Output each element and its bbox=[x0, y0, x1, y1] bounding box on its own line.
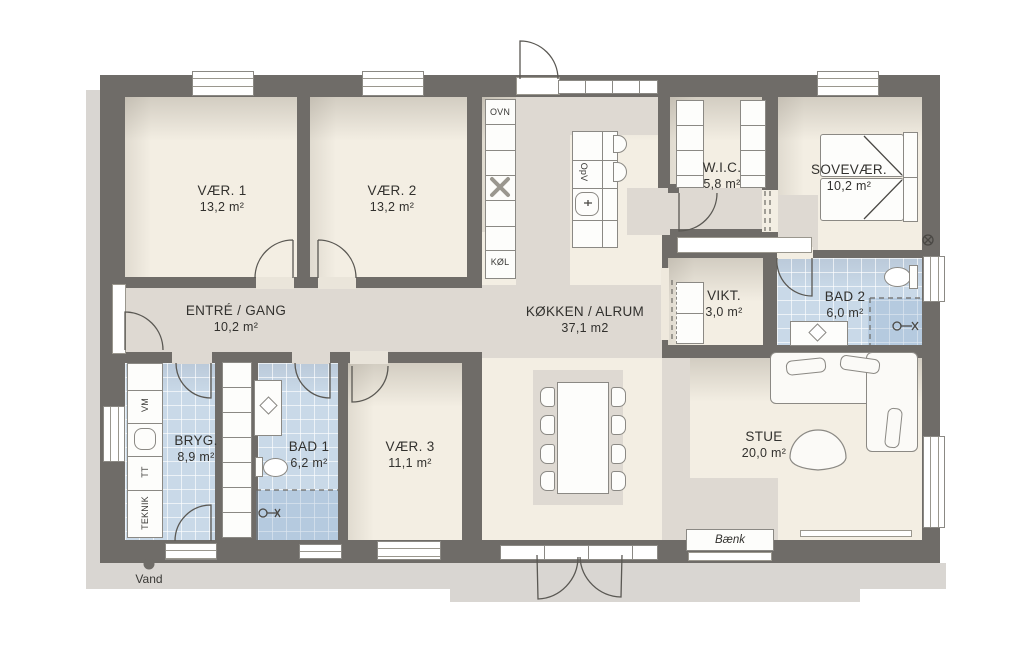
counter-divider bbox=[486, 175, 515, 176]
room-label-bad2: BAD 26,0 m² bbox=[795, 289, 895, 321]
dining-chair bbox=[611, 471, 626, 491]
counter-divider bbox=[486, 200, 515, 201]
teknik-label: TEKNIK bbox=[140, 483, 150, 543]
dining-chair bbox=[611, 387, 626, 407]
shadow-bottom bbox=[86, 563, 946, 589]
room-label-vikt: VIKT.3,0 m² bbox=[674, 288, 774, 320]
washing-machine-label: VM bbox=[140, 385, 150, 425]
room-label-bryg: BRYG.8,9 m² bbox=[146, 433, 246, 465]
window-bad2-right bbox=[923, 256, 945, 302]
room-label-wic: W.I.C.5,8 m² bbox=[672, 160, 772, 192]
window-sovevaer bbox=[817, 71, 879, 96]
dining-chair bbox=[540, 415, 555, 435]
bench-label: Bænk bbox=[687, 530, 773, 550]
shadow-bottom-step bbox=[450, 589, 860, 602]
dining-chair bbox=[540, 444, 555, 464]
counter-divider bbox=[486, 226, 515, 227]
dining-table bbox=[557, 382, 609, 494]
entrance-door-threshold bbox=[516, 77, 560, 95]
island-sink bbox=[575, 192, 599, 216]
dining-chair bbox=[540, 471, 555, 491]
window-vaer1 bbox=[192, 71, 254, 96]
zone-kitchen-left bbox=[516, 97, 570, 290]
room-label-vaer2: VÆR. 213,2 m² bbox=[332, 183, 452, 215]
island-divider bbox=[573, 220, 617, 221]
counter-divider bbox=[486, 124, 515, 125]
water-label: Vand bbox=[119, 572, 179, 586]
counter-divider bbox=[486, 150, 515, 151]
door-arc-entrance bbox=[520, 41, 558, 79]
window-vaer2 bbox=[362, 71, 424, 96]
dining-chair bbox=[540, 387, 555, 407]
dining-chair bbox=[611, 415, 626, 435]
room-label-vaer3: VÆR. 311,1 m² bbox=[360, 439, 460, 471]
bad2-toilet-tank bbox=[909, 265, 918, 289]
window-stue-right bbox=[923, 436, 945, 528]
room-label-bad1: BAD 16,2 m² bbox=[259, 439, 359, 471]
door-bryg-bottom bbox=[165, 543, 217, 560]
counter-divider bbox=[486, 250, 515, 251]
room-label-vaer1: VÆR. 113,2 m² bbox=[162, 183, 282, 215]
hall-niche bbox=[677, 237, 812, 253]
bad2-toilet-icon bbox=[884, 267, 911, 287]
opening-vikt-slider bbox=[661, 268, 669, 340]
kitchen-counter bbox=[485, 99, 516, 279]
room-label-sovevaer: SOVEVÆR.10,2 m² bbox=[789, 162, 909, 194]
bench: Bænk bbox=[686, 529, 774, 551]
front-door-frame bbox=[112, 284, 126, 354]
opening-bad1 bbox=[292, 351, 330, 364]
opening-vaer2 bbox=[318, 277, 356, 289]
window-vaer3-bottom bbox=[377, 541, 441, 560]
island-divider bbox=[602, 132, 603, 247]
dishwasher-label: OpV bbox=[579, 152, 589, 192]
opening-sovevaer-slider bbox=[762, 190, 778, 232]
entrance-sidelight bbox=[558, 80, 658, 94]
room-label-koekken: KØKKEN / ALRUM37,1 m2 bbox=[515, 304, 655, 336]
glazed-wall-terrace bbox=[500, 545, 658, 560]
window-bryg-left bbox=[103, 406, 125, 462]
shadow-left bbox=[86, 90, 100, 563]
floor-corridor bbox=[627, 188, 762, 235]
fridge-label: KØL bbox=[484, 257, 516, 267]
oven-label: OVN bbox=[484, 107, 516, 117]
floor-plan-canvas: OVN KØL OpV VM TT TEKNIK bbox=[0, 0, 1024, 645]
window-behind-bench bbox=[688, 552, 772, 561]
window-bad1-bottom bbox=[299, 544, 342, 559]
room-label-entre: ENTRÉ / GANG10,2 m² bbox=[166, 303, 306, 335]
dining-chair bbox=[611, 444, 626, 464]
opening-bryg bbox=[172, 351, 212, 364]
room-label-stue: STUE20,0 m² bbox=[714, 429, 814, 461]
opening-vaer1 bbox=[256, 277, 294, 289]
window-sill-stue-bottom bbox=[800, 530, 912, 537]
shower-area-bad1 bbox=[256, 490, 338, 540]
opening-vaer3 bbox=[350, 351, 388, 364]
